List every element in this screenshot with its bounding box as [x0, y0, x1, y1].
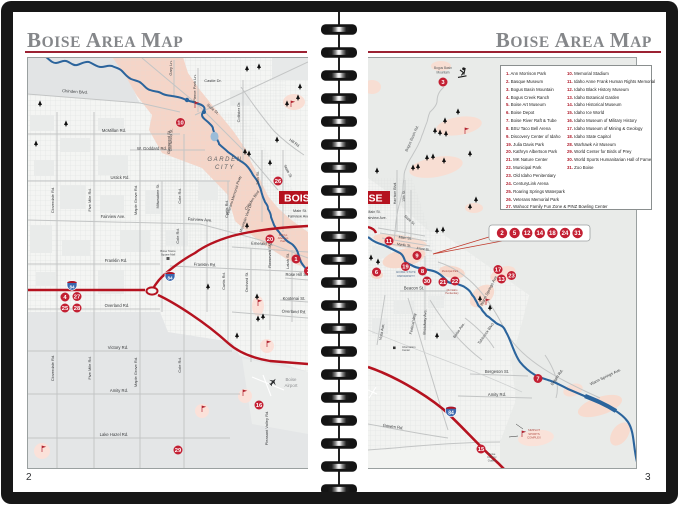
- svg-text:Victory Rd.: Victory Rd.: [108, 345, 128, 350]
- svg-text:Mountain: Mountain: [436, 71, 449, 75]
- svg-text:Park: Park: [280, 240, 286, 243]
- svg-text:25: 25: [62, 306, 69, 312]
- svg-text:17: 17: [495, 267, 501, 273]
- svg-text:84: 84: [69, 284, 75, 289]
- svg-text:Beacon St.: Beacon St.: [404, 286, 425, 291]
- svg-text:Lake Hazel Rd.: Lake Hazel Rd.: [100, 432, 129, 437]
- svg-text:Franklin Rd.: Franklin Rd.: [105, 258, 128, 263]
- svg-text:30: 30: [424, 279, 430, 285]
- svg-text:22: 22: [452, 279, 458, 285]
- svg-text:19: 19: [402, 264, 409, 270]
- svg-text:84: 84: [167, 275, 173, 280]
- svg-text:20: 20: [267, 237, 273, 243]
- svg-text:14: 14: [536, 231, 543, 237]
- svg-text:CITY: CITY: [215, 165, 235, 171]
- svg-text:Outlets: Outlets: [488, 458, 497, 462]
- svg-text:Five Mile Rd.: Five Mile Rd.: [87, 188, 92, 211]
- svg-text:SE: SE: [369, 193, 383, 205]
- svg-text:BOISE: BOISE: [284, 193, 308, 205]
- svg-text:Latah St.: Latah St.: [285, 253, 290, 269]
- svg-text:Main St.: Main St.: [293, 209, 307, 213]
- svg-text:13th St.: 13th St.: [402, 190, 406, 202]
- svg-text:Orchard St.: Orchard St.: [244, 272, 249, 292]
- svg-text:Gary Ln.: Gary Ln.: [168, 60, 173, 75]
- svg-text:Penitentiary: Penitentiary: [445, 292, 459, 295]
- svg-text:2: 2: [307, 269, 308, 275]
- svg-text:28: 28: [74, 306, 81, 312]
- svg-text:Curtis Rd.: Curtis Rd.: [221, 272, 226, 290]
- svg-text:Square Mall: Square Mall: [161, 253, 176, 257]
- svg-text:Fairview Ave.: Fairview Ave.: [101, 214, 126, 219]
- svg-text:13: 13: [498, 277, 505, 283]
- svg-text:Airport: Airport: [285, 383, 299, 388]
- svg-text:12: 12: [524, 231, 531, 237]
- svg-text:Collister Dr.: Collister Dr.: [236, 102, 241, 123]
- svg-text:31: 31: [574, 231, 581, 237]
- svg-text:Amity Rd.: Amity Rd.: [488, 392, 506, 397]
- svg-text:10: 10: [177, 120, 183, 126]
- svg-text:Castle Dr.: Castle Dr.: [204, 78, 222, 83]
- svg-text:UNIVERSITY: UNIVERSITY: [397, 274, 415, 278]
- svg-text:Boise: Boise: [286, 377, 298, 382]
- svg-text:Amity Rd.: Amity Rd.: [110, 388, 128, 393]
- svg-text:Boise Towne: Boise Towne: [160, 249, 176, 253]
- svg-text:Pierce Park Ln.: Pierce Park Ln.: [192, 74, 197, 101]
- svg-text:W. Goddard Rd.: W. Goddard Rd.: [137, 146, 167, 151]
- svg-text:Pleasant Valley Rd.: Pleasant Valley Rd.: [264, 411, 269, 446]
- svg-text:Roosevelt St.: Roosevelt St.: [267, 244, 272, 268]
- svg-text:Main St.: Main St.: [368, 210, 381, 214]
- svg-text:Fairview Ave.: Fairview Ave.: [288, 215, 308, 219]
- svg-text:15: 15: [478, 447, 485, 453]
- svg-text:36th St.: 36th St.: [255, 171, 260, 185]
- svg-text:Cole Rd.: Cole Rd.: [177, 357, 182, 373]
- svg-text:Bogus Basin: Bogus Basin: [434, 66, 452, 70]
- svg-text:Cole Rd.: Cole Rd.: [177, 188, 182, 204]
- svg-text:84: 84: [448, 411, 454, 417]
- svg-text:16: 16: [256, 403, 263, 409]
- svg-text:Cole Rd.: Cole Rd.: [175, 228, 180, 244]
- svg-text:Milwaukee St.: Milwaukee St.: [155, 184, 160, 209]
- svg-text:Overland Rd.: Overland Rd.: [282, 309, 307, 315]
- svg-text:Cloverdale Rd.: Cloverdale Rd.: [50, 187, 55, 213]
- svg-text:COMPLEX: COMPLEX: [527, 436, 541, 440]
- svg-text:Maple Grove Rd.: Maple Grove Rd.: [133, 357, 138, 387]
- svg-text:Overland Rd.: Overland Rd.: [105, 303, 130, 308]
- svg-text:26: 26: [275, 179, 282, 185]
- svg-text:Glenwood St.: Glenwood St.: [169, 129, 174, 152]
- svg-text:Harrison Blvd.: Harrison Blvd.: [393, 182, 397, 205]
- svg-text:27: 27: [74, 294, 80, 300]
- svg-text:7: 7: [536, 376, 539, 382]
- svg-text:Maple Grove Rd.: Maple Grove Rd.: [133, 185, 138, 215]
- svg-text:Bergeson St.: Bergeson St.: [485, 369, 509, 374]
- svg-text:Five Mile Rd.: Five Mile Rd.: [87, 356, 92, 379]
- svg-text:Municipal Park: Municipal Park: [442, 270, 459, 273]
- svg-text:GARDEN: GARDEN: [207, 157, 242, 163]
- svg-text:McMillan Rd.: McMillan Rd.: [102, 128, 126, 133]
- svg-text:Ustick Rd.: Ustick Rd.: [110, 175, 129, 180]
- svg-text:23: 23: [508, 273, 515, 279]
- svg-text:29: 29: [175, 448, 182, 454]
- svg-text:Center: Center: [402, 348, 410, 352]
- svg-text:Kootenai St.: Kootenai St.: [283, 296, 306, 301]
- svg-text:Fairview Ave.: Fairview Ave.: [368, 216, 387, 220]
- svg-text:11: 11: [386, 239, 393, 245]
- svg-text:Cloverdale Rd.: Cloverdale Rd.: [50, 355, 55, 381]
- svg-text:18: 18: [549, 231, 556, 237]
- svg-text:24: 24: [562, 231, 569, 237]
- svg-text:Franklin Rd.: Franklin Rd.: [194, 262, 217, 268]
- svg-text:21: 21: [440, 280, 447, 286]
